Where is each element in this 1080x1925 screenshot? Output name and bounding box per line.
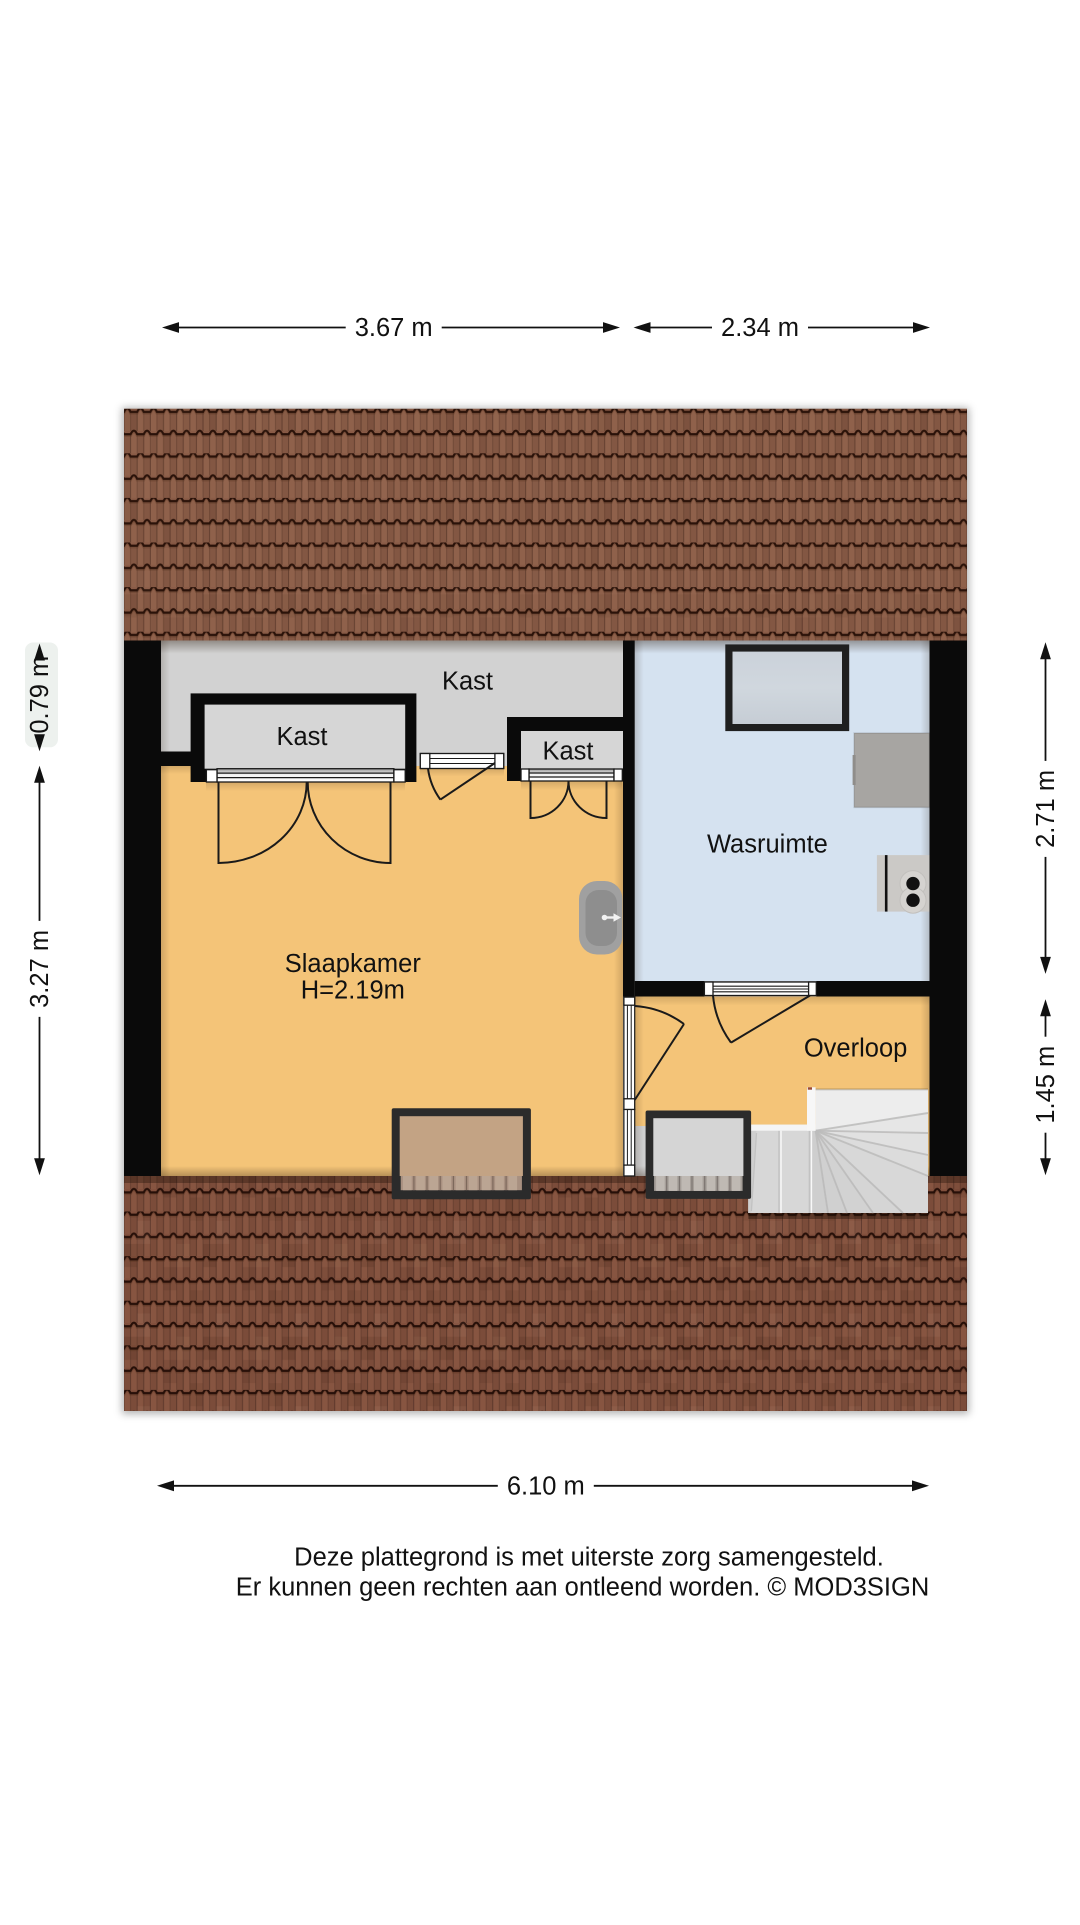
svg-text:Kast: Kast <box>442 668 493 696</box>
svg-text:Overloop: Overloop <box>804 1035 907 1063</box>
svg-text:3.27 m: 3.27 m <box>26 930 54 1008</box>
svg-text:Deze plattegrond is met uiters: Deze plattegrond is met uiterste zorg sa… <box>294 1544 884 1572</box>
svg-text:2.71 m: 2.71 m <box>1032 770 1060 848</box>
svg-text:Slaapkamer: Slaapkamer <box>285 950 422 978</box>
svg-text:Kast: Kast <box>276 723 327 751</box>
svg-text:H=2.19m: H=2.19m <box>301 976 405 1004</box>
svg-text:1.45 m: 1.45 m <box>1032 1046 1060 1124</box>
svg-text:Er kunnen geen rechten aan ont: Er kunnen geen rechten aan ontleend word… <box>236 1574 930 1602</box>
svg-text:Wasruimte: Wasruimte <box>707 831 828 859</box>
svg-text:2.34 m: 2.34 m <box>721 314 799 342</box>
svg-text:6.10 m: 6.10 m <box>507 1472 585 1500</box>
svg-text:Kast: Kast <box>542 738 593 766</box>
svg-text:3.67 m: 3.67 m <box>355 314 433 342</box>
svg-text:0.79 m: 0.79 m <box>26 656 54 734</box>
